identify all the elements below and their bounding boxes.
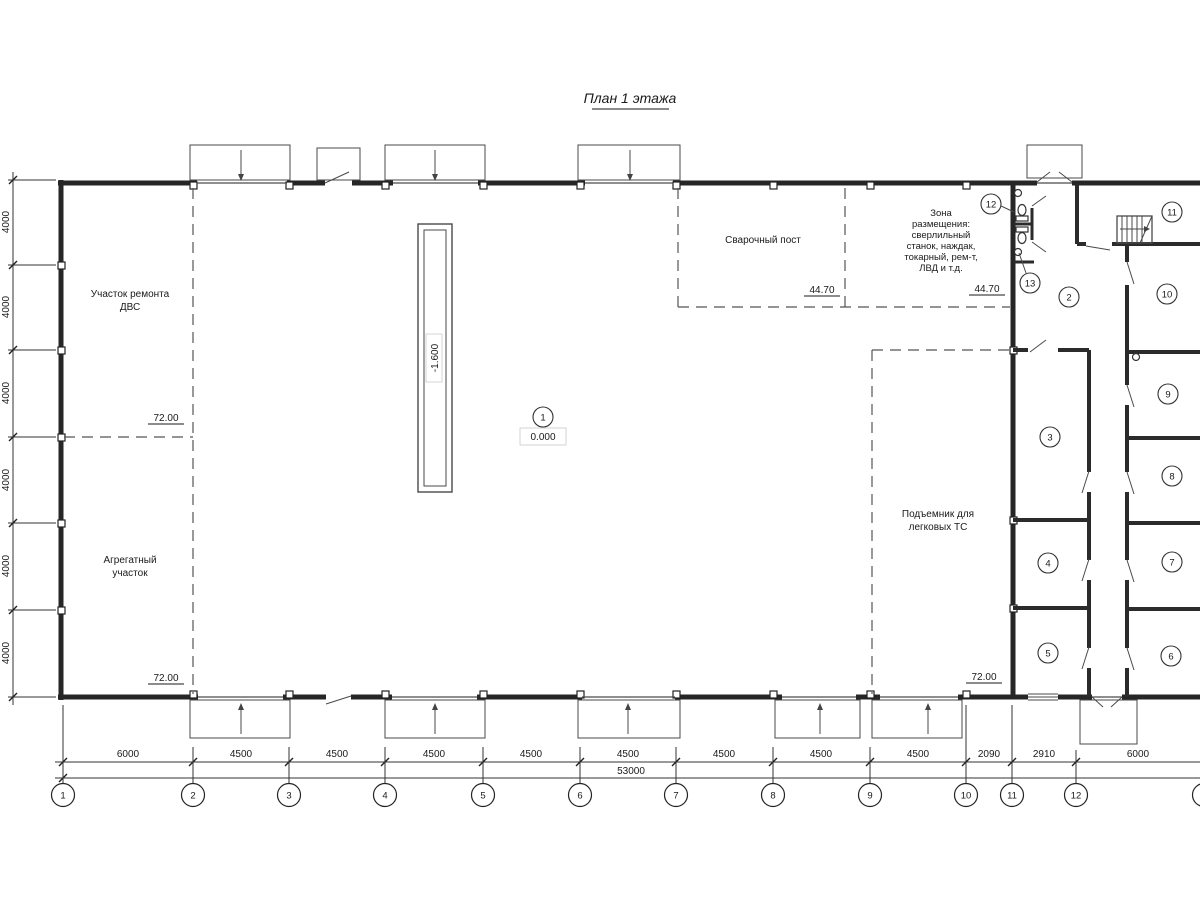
extension-lines: [8, 180, 56, 697]
door-leaf: [1127, 648, 1134, 670]
door-leaf: [1127, 560, 1134, 582]
svg-text:12: 12: [1071, 791, 1082, 802]
svg-text:11: 11: [1007, 791, 1017, 802]
welding-elevation: 44.70: [809, 285, 834, 296]
svg-text:8: 8: [770, 791, 775, 802]
hall-elevation: 0.000: [520, 428, 566, 445]
zone-label-line: ЛВД и т.д.: [919, 263, 963, 274]
dim-value: 6000: [117, 749, 140, 760]
svg-text:12: 12: [986, 200, 997, 211]
room-marker-3: 3: [1040, 427, 1060, 447]
grid-bubble-6: 6: [569, 784, 592, 807]
welding-label: Сварочный пост: [725, 235, 801, 246]
lift-label: Подъемник для: [902, 509, 974, 520]
room-marker-5: 5: [1038, 643, 1058, 663]
dim-value: 4500: [617, 749, 640, 760]
floor-plan-drawing: План 1 этажа: [0, 0, 1200, 900]
zone-label-line: токарный, рем-т,: [904, 252, 977, 263]
bubble-stems: [63, 762, 1076, 784]
svg-text:3: 3: [286, 791, 291, 802]
entrance-canopy: [1027, 145, 1082, 178]
room-marker-7: 7: [1162, 552, 1182, 572]
aggregate-label2: участок: [112, 568, 148, 579]
gate-canopy: [775, 700, 860, 738]
room-marker-10: 10: [1157, 284, 1177, 304]
title-text: План 1 этажа: [584, 90, 677, 106]
zone-label-line: сверлильный: [912, 230, 971, 241]
dim-value: 4500: [810, 749, 833, 760]
dvs-label: Участок ремонта: [91, 289, 170, 300]
door-leaf: [1082, 559, 1089, 581]
dim-value: 4500: [326, 749, 349, 760]
grid-bubble-12: 12: [1065, 784, 1088, 807]
svg-text:10: 10: [1162, 290, 1173, 301]
grid-bubble-9: 9: [859, 784, 882, 807]
svg-text:-1.600: -1.600: [430, 343, 441, 372]
grid-bubble-13-partial: [1193, 784, 1200, 807]
svg-text:6: 6: [577, 791, 582, 802]
gate-arrow-down: [238, 150, 633, 181]
svg-text:5: 5: [1045, 649, 1050, 660]
toilet-icon: [1016, 227, 1028, 244]
entrance-door-leaf: [1059, 172, 1072, 182]
room-marker-6: 6: [1161, 646, 1181, 666]
room-marker-4: 4: [1038, 553, 1058, 573]
dim-value: 4000: [1, 381, 12, 404]
sink-icon: [1015, 249, 1022, 256]
dim-value: 4000: [1, 641, 12, 664]
door-canopy: [317, 148, 360, 180]
room-labels: Участок ремонта ДВС 72.00 Агрегатный уча…: [91, 208, 1005, 684]
room-marker-2: 2: [1059, 287, 1079, 307]
exit-door-leaf: [1111, 697, 1122, 707]
grid-bubble-1: 1: [52, 784, 75, 807]
grid-bubble-4: 4: [374, 784, 397, 807]
door-leaf: [1082, 471, 1089, 493]
door-leaf: [326, 696, 351, 704]
dim-value: 4000: [1, 468, 12, 491]
svg-text:6: 6: [1168, 652, 1173, 663]
room-marker-13: 13: [1019, 253, 1040, 293]
aggregate-label: Агрегатный: [103, 555, 156, 566]
svg-text:9: 9: [1165, 390, 1170, 401]
svg-text:4: 4: [382, 791, 387, 802]
pit-elevation: -1.600: [426, 334, 442, 382]
grid-bubbles: 1 2 3 4 5 6 7 8 9 10 11 12: [52, 784, 1200, 807]
toilet-icon: [1016, 205, 1028, 222]
dim-value: 4000: [1, 210, 12, 233]
door-leaf: [1127, 472, 1134, 494]
svg-text:2: 2: [190, 791, 195, 802]
dim-value: 2910: [1033, 749, 1056, 760]
door-leaf: [1032, 242, 1046, 252]
top-gates: [190, 145, 1082, 183]
door-leaf: [1127, 262, 1134, 284]
svg-text:8: 8: [1169, 472, 1174, 483]
left-dimensions: 4000 4000 4000 4000 4000 4000: [1, 172, 56, 705]
svg-text:7: 7: [673, 791, 678, 802]
wc-block: [1013, 190, 1046, 263]
room-marker-9: 9: [1158, 384, 1178, 404]
door-leaf: [1032, 196, 1046, 206]
svg-text:2: 2: [1066, 293, 1071, 304]
dim-value: 4500: [423, 749, 446, 760]
room-marker-11: 11: [1162, 202, 1182, 222]
exit-door-leaf: [1092, 697, 1103, 707]
zone-label-line: размещения:: [912, 219, 970, 230]
dim-value: 2090: [978, 749, 1001, 760]
svg-text:7: 7: [1169, 558, 1174, 569]
door-leaf: [1127, 385, 1134, 407]
dim-value: 4000: [1, 554, 12, 577]
svg-text:5: 5: [480, 791, 485, 802]
room-marker-1: 1: [533, 407, 553, 427]
zone-label-line: станок, наждак,: [907, 241, 976, 252]
floor-plan-sheet: План 1 этажа: [0, 0, 1200, 900]
dim-total-value: 53000: [617, 766, 645, 777]
bottom-dimensions: 6000 4500 4500 4500 4500 4500 4500 4500 …: [52, 705, 1200, 807]
door-leaf: [1030, 340, 1046, 352]
svg-text:10: 10: [961, 791, 972, 802]
lift-label2: легковых ТС: [909, 522, 968, 533]
door-leaf: [325, 172, 349, 183]
grid-bubble-8: 8: [762, 784, 785, 807]
grid-bubble-7: 7: [665, 784, 688, 807]
door-leaf: [1086, 246, 1110, 250]
grid-bubble-11: 11: [1001, 784, 1024, 807]
svg-text:1: 1: [540, 413, 545, 424]
inspection-pit: -1.600: [418, 224, 452, 492]
stairs-icon: [1117, 216, 1152, 243]
grid-bubble-2: 2: [182, 784, 205, 807]
svg-text:4: 4: [1045, 559, 1050, 570]
dim-value: 4500: [713, 749, 736, 760]
lift-elevation: 72.00: [971, 672, 996, 683]
svg-text:13: 13: [1025, 279, 1036, 290]
room-marker-8: 8: [1162, 466, 1182, 486]
svg-text:0.000: 0.000: [530, 432, 555, 443]
grid-bubble-3: 3: [278, 784, 301, 807]
dim-value: 4000: [1, 295, 12, 318]
dim-value: 4500: [520, 749, 543, 760]
sink-icon: [1133, 354, 1140, 361]
svg-text:1: 1: [60, 791, 65, 802]
zone-label-line: Зона: [930, 208, 952, 219]
drawing-title: План 1 этажа: [584, 90, 677, 109]
gate-arrow-up: [238, 703, 931, 734]
sink-icon: [1015, 190, 1022, 197]
gate-canopy: [872, 700, 962, 738]
bottom-gates: [190, 696, 1137, 744]
aggregate-elevation: 72.00: [153, 673, 178, 684]
window-symbol: [1028, 694, 1058, 700]
dvs-elevation: 72.00: [153, 413, 178, 424]
svg-text:3: 3: [1047, 433, 1052, 444]
outer-walls: [58, 180, 1200, 700]
grid-bubble-10: 10: [955, 784, 978, 807]
dim-value: 4500: [230, 749, 253, 760]
entrance-door-leaf: [1037, 172, 1050, 182]
dim-value: 6000: [1127, 749, 1150, 760]
door-leaf: [1082, 647, 1089, 669]
zone-elevation: 44.70: [974, 284, 999, 295]
dim-value: 4500: [907, 749, 930, 760]
dvs-label2: ДВС: [120, 302, 140, 313]
room-number-markers: 1 2 3 4 5 6 7 8 9 10 11 12 13: [533, 194, 1182, 666]
room-marker-12: 12: [981, 194, 1014, 214]
exit-porch: [1080, 700, 1137, 744]
svg-text:9: 9: [867, 791, 872, 802]
svg-text:11: 11: [1167, 208, 1177, 219]
grid-bubble-5: 5: [472, 784, 495, 807]
